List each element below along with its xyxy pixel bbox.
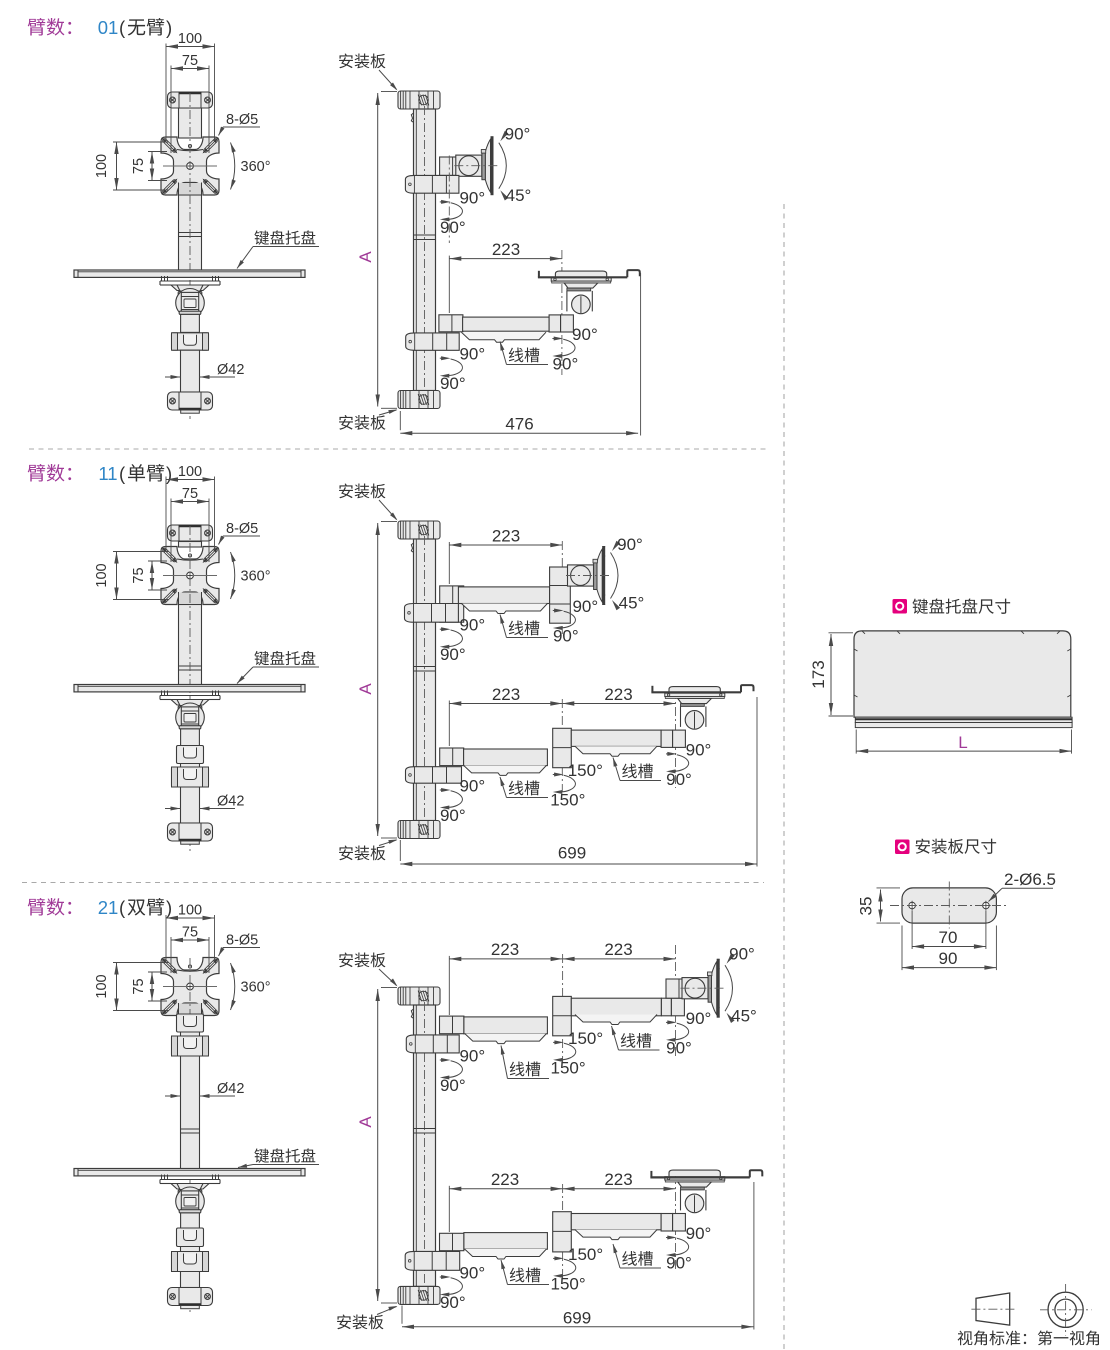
svg-text:Ø42: Ø42 xyxy=(217,1081,244,1097)
svg-text:90°: 90° xyxy=(459,616,485,635)
svg-text:150°: 150° xyxy=(568,1029,603,1048)
svg-text:90°: 90° xyxy=(440,645,466,664)
svg-text:Ø42: Ø42 xyxy=(217,362,244,378)
svg-text:150°: 150° xyxy=(551,1274,586,1293)
svg-text:90°: 90° xyxy=(572,325,598,344)
svg-text:01: 01 xyxy=(98,17,119,38)
svg-text:45°: 45° xyxy=(506,186,532,205)
svg-text:70: 70 xyxy=(939,928,958,947)
svg-text:150°: 150° xyxy=(568,761,603,780)
svg-text:223: 223 xyxy=(491,1170,519,1189)
svg-text:90°: 90° xyxy=(686,740,712,759)
svg-text:223: 223 xyxy=(492,527,520,546)
svg-text:90°: 90° xyxy=(440,1076,466,1095)
svg-text:100: 100 xyxy=(94,974,110,998)
svg-text:45°: 45° xyxy=(731,1007,757,1026)
svg-text:90°: 90° xyxy=(572,597,598,616)
svg-text:): ) xyxy=(166,17,172,38)
svg-text:): ) xyxy=(166,897,172,918)
svg-text:90°: 90° xyxy=(553,355,579,374)
svg-text:173: 173 xyxy=(809,660,828,688)
svg-text:2-Ø6.5: 2-Ø6.5 xyxy=(1004,870,1056,889)
svg-text:8-Ø5: 8-Ø5 xyxy=(226,112,258,128)
svg-text:): ) xyxy=(166,463,172,484)
svg-text:90°: 90° xyxy=(553,627,579,646)
svg-text:150°: 150° xyxy=(551,1058,586,1077)
svg-text:100: 100 xyxy=(178,903,202,919)
svg-text:90°: 90° xyxy=(505,125,531,144)
svg-text:(: ( xyxy=(119,897,126,918)
svg-text:75: 75 xyxy=(182,486,198,502)
svg-text:360°: 360° xyxy=(241,159,271,175)
svg-text:100: 100 xyxy=(178,464,202,480)
svg-text:360°: 360° xyxy=(241,569,271,585)
svg-text:150°: 150° xyxy=(550,791,585,810)
svg-text:90°: 90° xyxy=(666,1038,692,1057)
svg-text:75: 75 xyxy=(131,978,147,994)
svg-text:75: 75 xyxy=(131,567,147,583)
svg-text:90°: 90° xyxy=(686,1224,712,1243)
svg-text:360°: 360° xyxy=(241,980,271,996)
svg-text:45°: 45° xyxy=(619,594,645,613)
svg-text:L: L xyxy=(958,733,967,752)
svg-text:90°: 90° xyxy=(459,1047,485,1066)
svg-text:8-Ø5: 8-Ø5 xyxy=(226,933,258,949)
svg-text:Ø42: Ø42 xyxy=(217,794,244,810)
svg-text:90°: 90° xyxy=(686,1009,712,1028)
svg-text:A: A xyxy=(356,1116,375,1128)
svg-text:8-Ø5: 8-Ø5 xyxy=(226,521,258,537)
svg-text:(: ( xyxy=(119,17,126,38)
svg-text:699: 699 xyxy=(558,844,586,863)
svg-text:90°: 90° xyxy=(666,770,692,789)
svg-text:A: A xyxy=(356,251,375,263)
svg-text:223: 223 xyxy=(604,940,632,959)
svg-text:223: 223 xyxy=(492,685,520,704)
svg-text:90: 90 xyxy=(939,949,958,968)
svg-text:223: 223 xyxy=(604,685,632,704)
svg-text:90°: 90° xyxy=(440,1293,466,1312)
svg-text:100: 100 xyxy=(94,563,110,587)
svg-text:(: ( xyxy=(119,463,126,484)
svg-text:90°: 90° xyxy=(459,777,485,796)
svg-text:699: 699 xyxy=(563,1309,591,1328)
svg-text:223: 223 xyxy=(604,1170,632,1189)
svg-text:100: 100 xyxy=(94,154,110,178)
svg-text:90°: 90° xyxy=(459,188,485,207)
svg-text:90°: 90° xyxy=(459,1264,485,1283)
svg-text:A: A xyxy=(356,683,375,695)
svg-text:150°: 150° xyxy=(568,1245,603,1264)
svg-text:90°: 90° xyxy=(440,374,466,393)
svg-text:223: 223 xyxy=(491,940,519,959)
svg-text:90°: 90° xyxy=(440,218,466,237)
svg-text:35: 35 xyxy=(857,897,876,916)
svg-text:223: 223 xyxy=(492,240,520,259)
svg-text:90°: 90° xyxy=(666,1254,692,1273)
svg-text:476: 476 xyxy=(505,415,533,434)
svg-text:11: 11 xyxy=(98,463,117,484)
svg-text:90°: 90° xyxy=(440,806,466,825)
svg-text:75: 75 xyxy=(182,925,198,941)
svg-text:100: 100 xyxy=(178,31,202,47)
svg-text:90°: 90° xyxy=(459,345,485,364)
svg-text:21: 21 xyxy=(98,897,119,918)
svg-text:75: 75 xyxy=(182,53,198,69)
svg-text:90°: 90° xyxy=(617,535,643,554)
svg-text:75: 75 xyxy=(131,158,147,174)
svg-text:90°: 90° xyxy=(729,945,755,964)
